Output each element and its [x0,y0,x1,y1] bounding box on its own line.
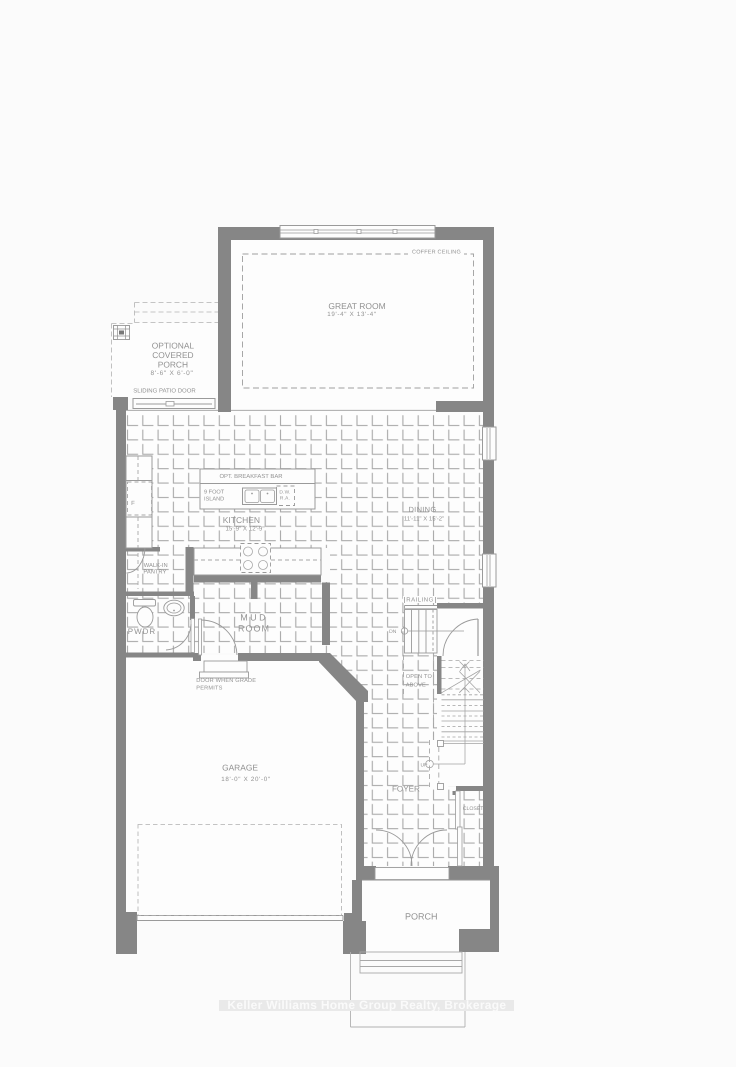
svg-text:DN: DN [389,629,397,635]
svg-text:WALK-IN: WALK-IN [144,563,168,569]
svg-text:18'-0" X 20'-0": 18'-0" X 20'-0" [221,776,271,783]
svg-text:PORCH: PORCH [405,912,438,922]
svg-text:9 FOOT: 9 FOOT [204,490,225,496]
svg-text:D.W.: D.W. [279,490,290,496]
svg-text:SLIDING PATIO DOOR: SLIDING PATIO DOOR [133,388,196,395]
svg-text:GARAGE: GARAGE [222,762,258,772]
svg-text:19'-4" X 13'-4": 19'-4" X 13'-4" [327,311,377,318]
svg-text:KITCHEN: KITCHEN [223,515,260,525]
svg-text:CLOSET: CLOSET [463,806,485,812]
svg-text:PWDR: PWDR [128,627,156,636]
svg-text:ROOM: ROOM [238,624,270,634]
svg-text:F: F [131,500,135,507]
svg-text:PANTRY: PANTRY [143,570,166,576]
svg-text:RAILING: RAILING [406,597,434,604]
svg-text:PERMITS: PERMITS [196,686,222,692]
svg-text:DOOR WHEN GRADE: DOOR WHEN GRADE [196,678,256,684]
svg-text:11'-11" X 15'-2": 11'-11" X 15'-2" [404,516,444,523]
svg-text:ISLAND: ISLAND [204,497,224,503]
svg-text:MUD: MUD [240,613,268,623]
svg-text:COVERED: COVERED [152,350,193,360]
svg-text:OPT. BREAKFAST BAR: OPT. BREAKFAST BAR [219,473,282,480]
svg-text:UP: UP [421,763,429,769]
svg-text:Keller Williams Home Group Rea: Keller Williams Home Group Realty, Broke… [227,998,506,1012]
svg-text:15'-9" X 12'-9": 15'-9" X 12'-9" [225,526,264,533]
svg-text:DINING: DINING [408,505,436,514]
svg-text:PORCH: PORCH [158,360,188,370]
svg-text:ABOVE: ABOVE [406,682,426,688]
svg-text:OPTIONAL: OPTIONAL [152,341,195,351]
svg-text:8'-6" X 6'-0": 8'-6" X 6'-0" [151,370,194,377]
svg-text:FOYER: FOYER [392,785,420,794]
svg-text:GREAT ROOM: GREAT ROOM [328,301,385,311]
svg-text:COFFER CEILING: COFFER CEILING [412,250,461,256]
svg-text:R.A.: R.A. [280,496,290,502]
svg-text:OPEN TO: OPEN TO [406,674,433,680]
